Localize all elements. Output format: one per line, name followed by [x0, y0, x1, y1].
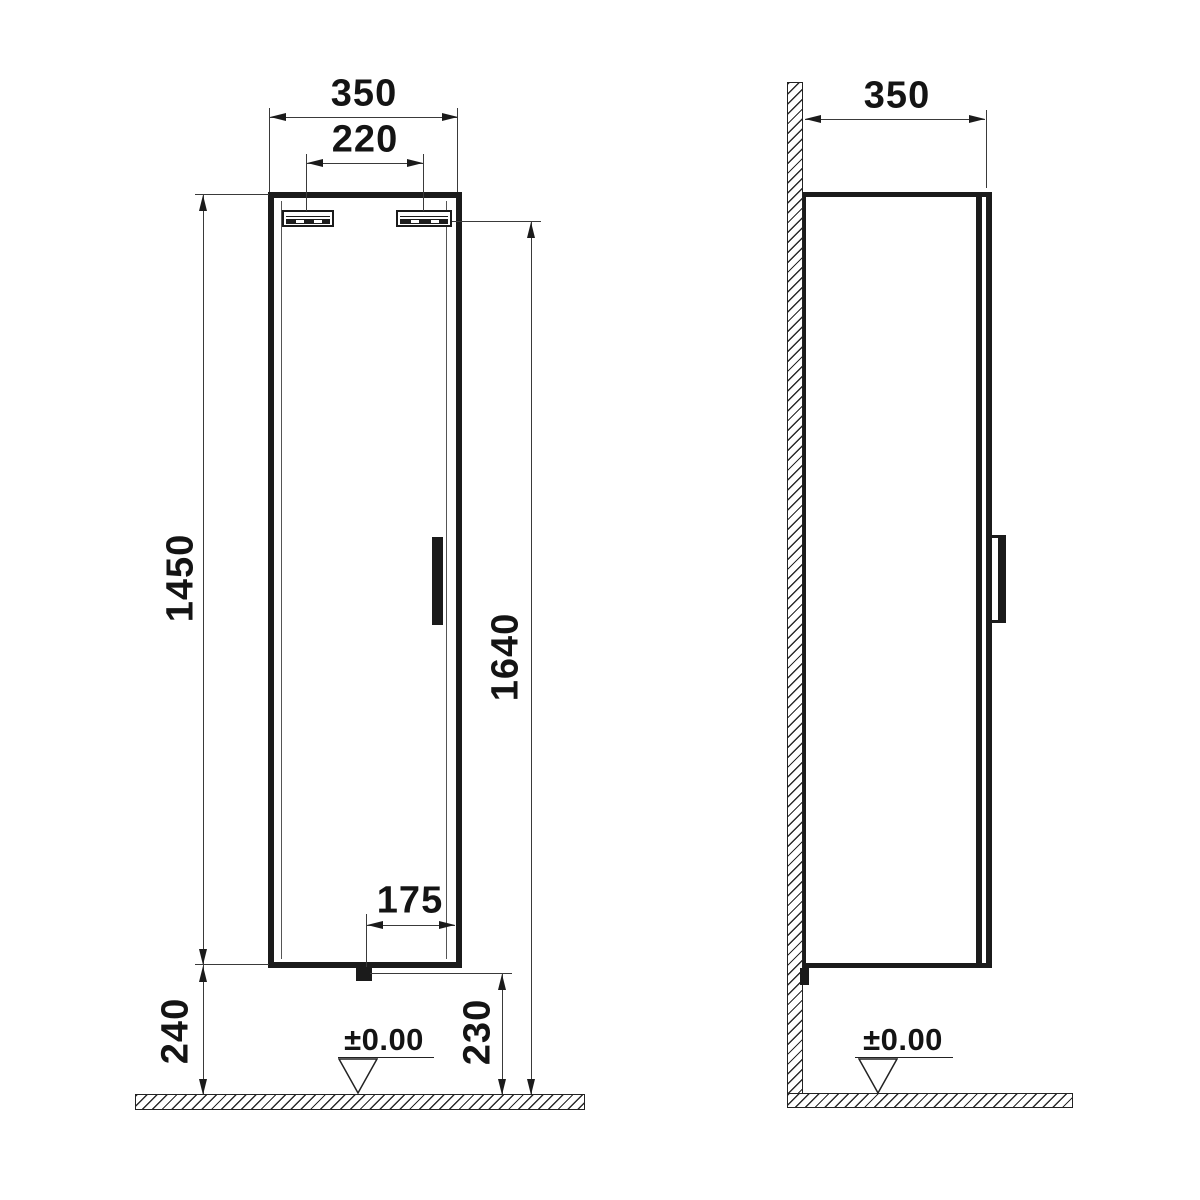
dim-1450-label: 1450 [160, 534, 203, 623]
dim-240-line [203, 965, 204, 1095]
hanger-right-rail-line [400, 216, 448, 217]
dim-350s-arrow-left [805, 115, 821, 123]
datum-triangle-side [858, 1058, 898, 1095]
dim-220-arrow-left [307, 159, 323, 167]
side-cabinet-body [803, 192, 978, 968]
hanger-bracket-left [282, 210, 334, 227]
dim-220-arrow-right [407, 159, 423, 167]
dim-230-label: 230 [457, 999, 500, 1065]
dim-230-arrow-down [498, 1079, 506, 1095]
hanger-left-rail [286, 219, 330, 224]
dim-240-label: 240 [155, 998, 198, 1064]
dim-1640-label: 1640 [485, 613, 528, 702]
dim-240-arrow-down [199, 1079, 207, 1095]
floor-front-view [135, 1094, 585, 1110]
hanger-left-slot-1 [296, 220, 304, 223]
dim-350s-line [805, 119, 985, 120]
datum-label-front: ±0.00 [344, 1022, 424, 1058]
door-handle-side [991, 535, 1006, 623]
dim-230-line [502, 973, 503, 1095]
dim-350f-arrow-left [270, 113, 286, 121]
dim-220-label: 220 [332, 119, 398, 162]
dim-1450-line [203, 195, 204, 965]
dim-1640-arrow-up [527, 222, 535, 238]
hanger-right-rail [400, 219, 448, 224]
dim-230-arrow-up [498, 974, 506, 990]
dim-230-ext-top [370, 973, 512, 974]
front-door-gap-left-line [281, 201, 282, 959]
dim-350s-ext-right [986, 110, 987, 188]
dim-350s-arrow-right [969, 115, 985, 123]
technical-drawing-canvas: 350 220 1450 240 1640 175 230 ±0.00 [0, 0, 1200, 1200]
door-handle-front [432, 537, 443, 625]
dim-1450-arrow-down [199, 949, 207, 965]
hanger-left-slot-2 [314, 220, 322, 223]
side-door-panel [978, 192, 992, 968]
dim-350f-label: 350 [331, 73, 397, 116]
wall-section [787, 82, 803, 1108]
hanger-right-slot-1 [411, 220, 419, 223]
dim-350s-label: 350 [864, 75, 930, 118]
dim-1640-line [531, 222, 532, 1095]
datum-label-side: ±0.00 [863, 1022, 943, 1058]
dim-1450-arrow-up [199, 195, 207, 211]
dim-240-arrow-up [199, 966, 207, 982]
hanger-left-rail-line [286, 216, 330, 217]
dim-350f-arrow-right [442, 113, 458, 121]
dim-1640-arrow-down [527, 1079, 535, 1095]
datum-triangle-front [338, 1058, 378, 1095]
hanger-right-slot-2 [431, 220, 439, 223]
dim-175-label: 175 [377, 880, 443, 923]
floor-side-view [787, 1093, 1073, 1108]
front-door-gap-right-line [446, 201, 447, 959]
side-wall-bracket [800, 968, 809, 985]
hanger-bracket-right [396, 210, 452, 227]
